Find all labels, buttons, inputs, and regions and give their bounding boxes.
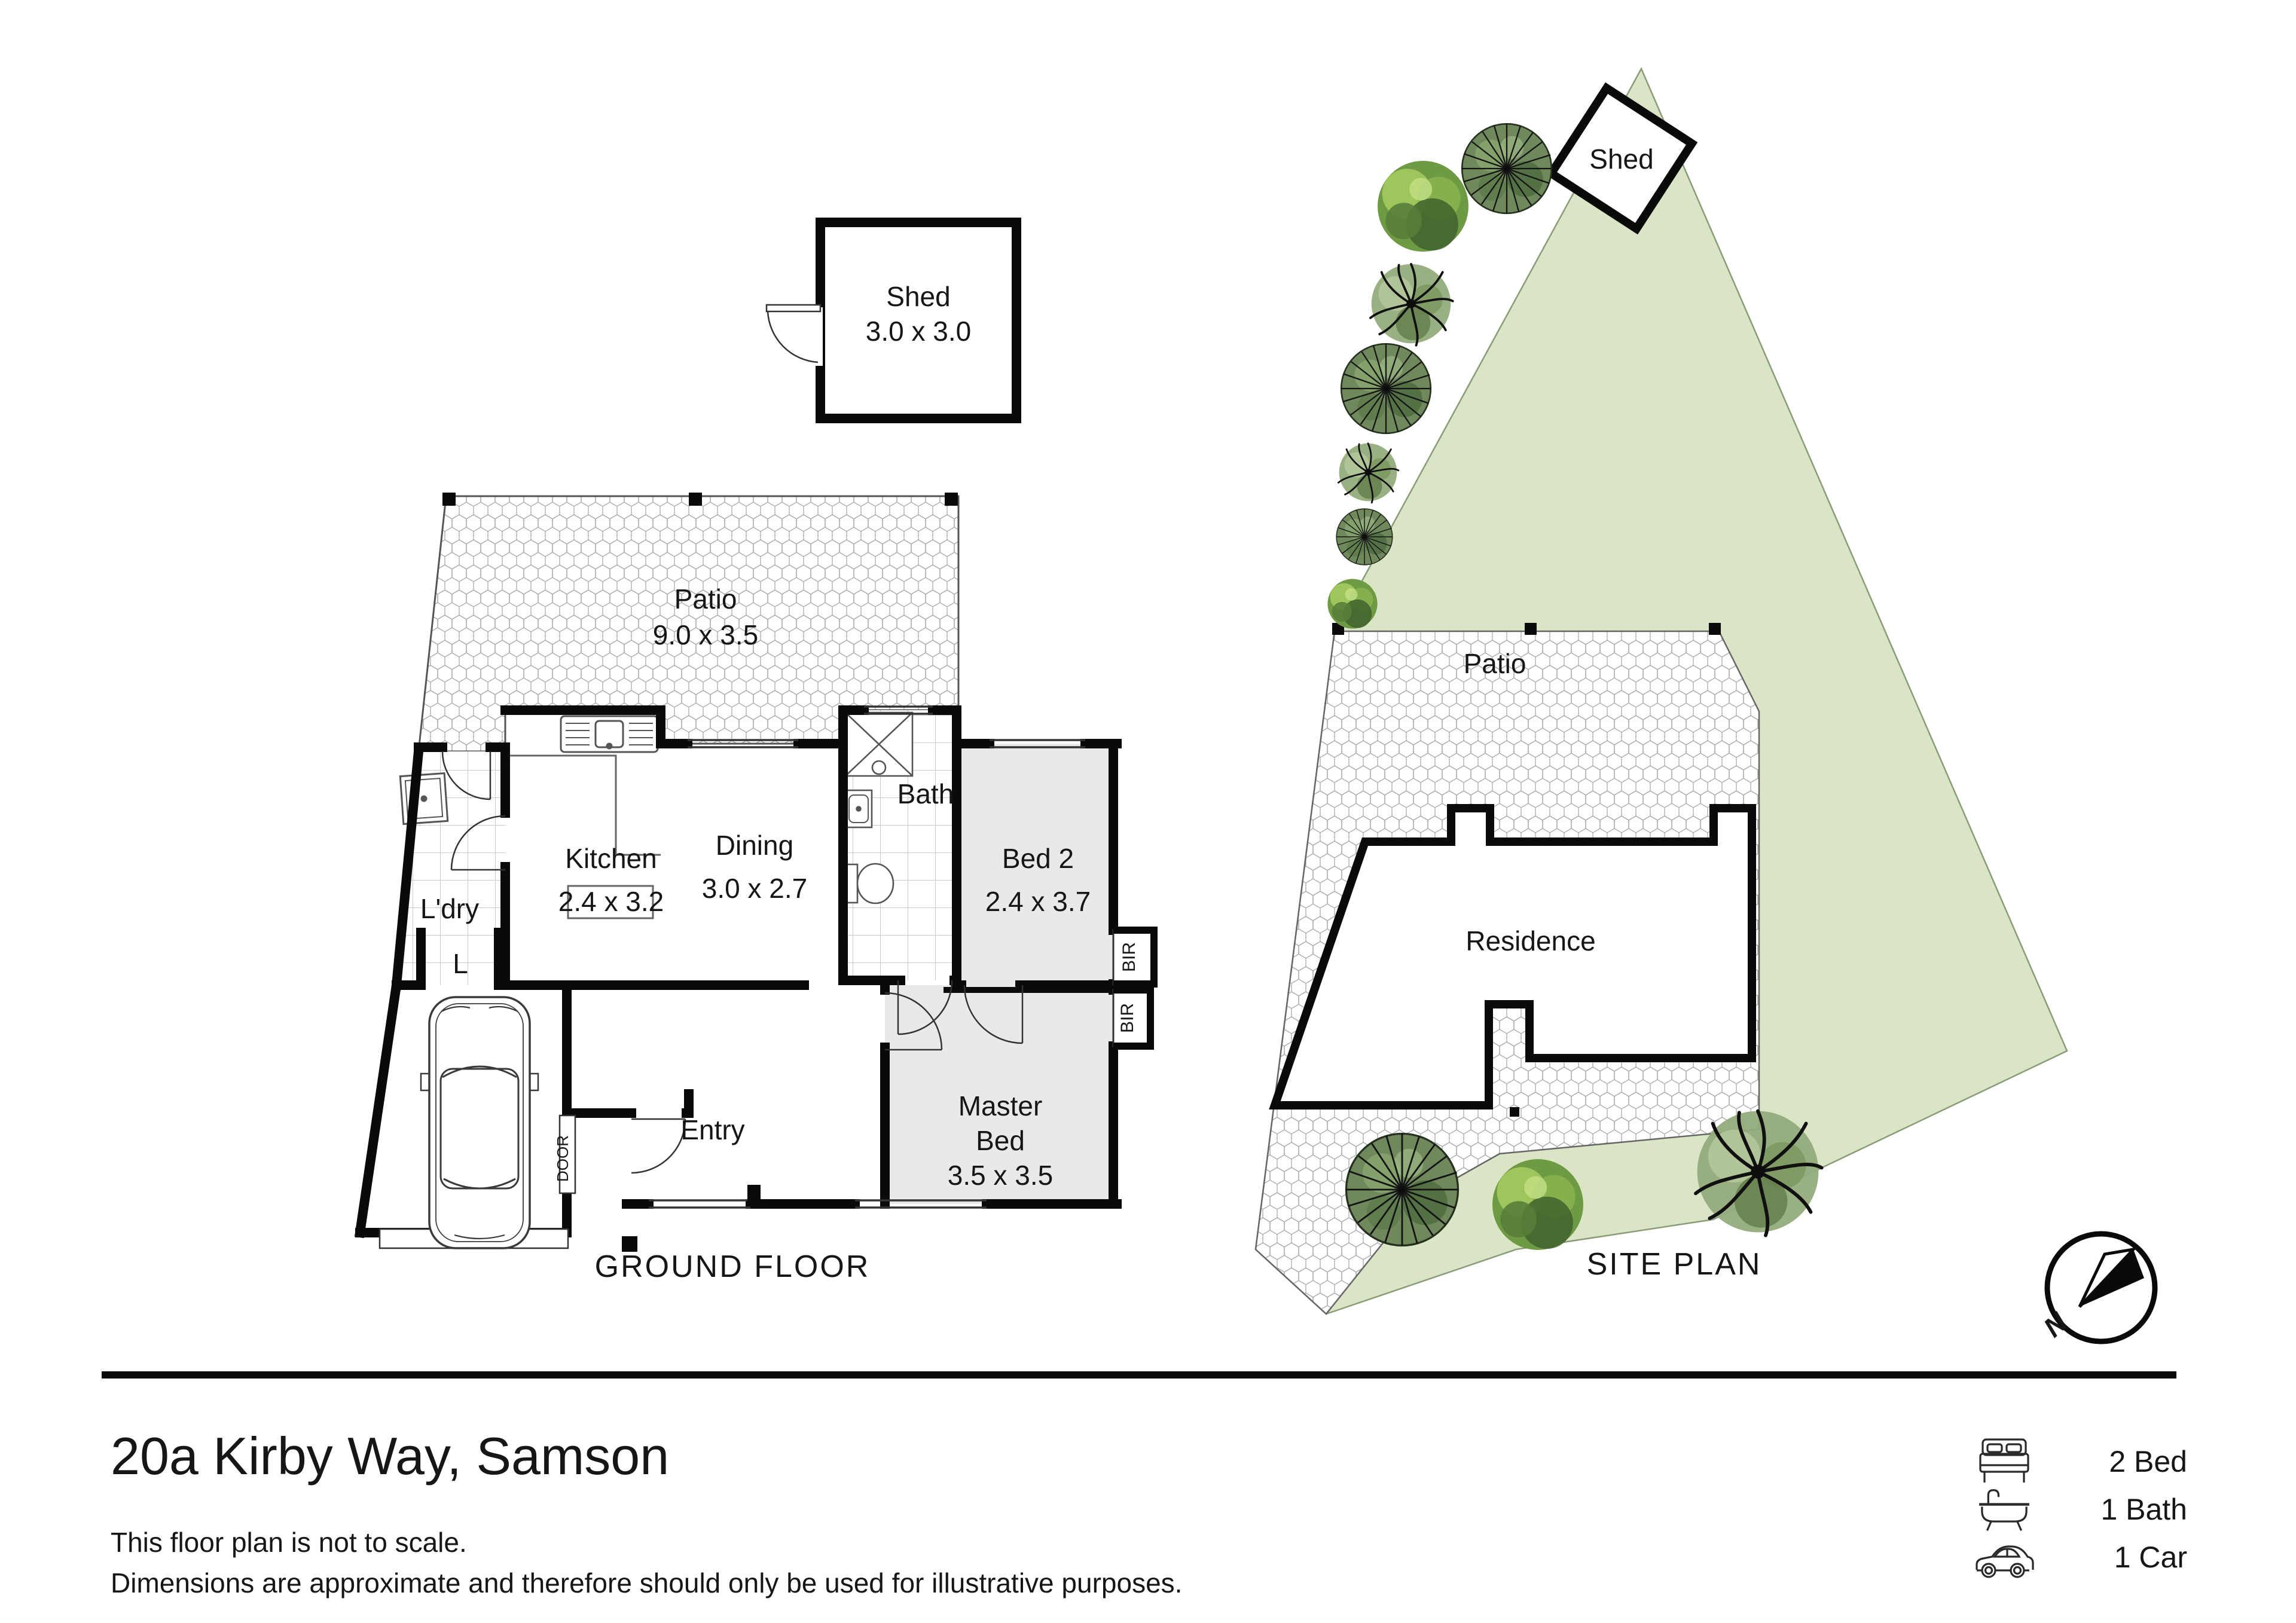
shower [845, 713, 912, 776]
palm-tree [1462, 124, 1552, 213]
shed-door-opening [811, 307, 823, 366]
site-patio-post [1709, 623, 1721, 635]
disclaimer-line-1: This floor plan is not to scale. [111, 1527, 467, 1558]
disclaimer-line-2: Dimensions are approximate and therefore… [111, 1567, 1182, 1598]
bush-tree [1492, 1159, 1583, 1250]
patio-dims: 9.0 x 3.5 [653, 619, 758, 650]
shed-door-leaf [767, 305, 820, 311]
floorplan-canvas: Shed 3.0 x 3.0 [0, 0, 2296, 1623]
shed-label: Shed [886, 281, 950, 312]
palm-tree [1336, 509, 1393, 565]
bath-icon [1979, 1490, 2029, 1531]
site-plan-title: SITE PLAN [1587, 1247, 1762, 1282]
bush-tree [1327, 579, 1377, 628]
car-icon [1977, 1546, 2033, 1577]
branch-tree [1338, 444, 1398, 503]
patio-post [442, 493, 456, 506]
shed-door-arc [768, 311, 818, 362]
site-post [1510, 1107, 1519, 1117]
palm-tree [1347, 1134, 1458, 1246]
garage-internal-door: DOOR [554, 1115, 575, 1193]
shed-dims: 3.0 x 3.0 [866, 316, 971, 347]
linen-label: L [453, 948, 468, 979]
laundry-trough [400, 774, 447, 824]
entry-label: Entry [680, 1114, 744, 1145]
divider-line [102, 1371, 2176, 1379]
patio-post [689, 493, 702, 506]
garage-car [421, 997, 538, 1248]
site-patio-label: Patio [1464, 648, 1526, 679]
address: 20a Kirby Way, Samson [111, 1426, 669, 1486]
bush-tree [1378, 161, 1468, 252]
kitchen-dims: 2.4 x 3.2 [558, 886, 664, 917]
bir-label: BIR [1118, 1003, 1137, 1033]
bath-label: Bath [897, 778, 954, 809]
dining-dims: 3.0 x 2.7 [702, 873, 807, 904]
bir-label: BIR [1119, 942, 1139, 972]
dining-label: Dining [716, 830, 793, 861]
site-plan: Shed Patio Residence SITE PLAN N [1256, 69, 2155, 1343]
laundry-label: L'dry [420, 893, 479, 924]
feature-beds: 2 Bed [2109, 1445, 2187, 1478]
site-patio-post [1525, 623, 1537, 635]
ground-floor-title: GROUND FLOOR [595, 1249, 871, 1284]
patio-label: Patio [674, 583, 737, 615]
bed-icon [1980, 1439, 2028, 1483]
wall-stub [747, 1185, 761, 1204]
ground-floor-plan: Shed 3.0 x 3.0 [360, 222, 1154, 1284]
feature-baths: 1 Bath [2100, 1493, 2187, 1526]
compass: N [2038, 1234, 2155, 1343]
bed2-dims: 2.4 x 3.7 [985, 886, 1091, 917]
master-label-1: Master [958, 1090, 1043, 1121]
bir-bed2: BIR [1113, 930, 1154, 984]
door-label: DOOR [554, 1135, 572, 1182]
branch-tree [1696, 1111, 1822, 1236]
bed2-label: Bed 2 [1002, 843, 1074, 874]
toilet [845, 864, 893, 903]
bath-vanity [845, 790, 872, 827]
site-shed-label: Shed [1589, 143, 1653, 175]
bir-master: BIR [1113, 990, 1150, 1046]
kitchen-label: Kitchen [565, 843, 657, 874]
patio-post [945, 493, 958, 506]
site-residence-label: Residence [1465, 925, 1595, 956]
palm-tree [1341, 344, 1431, 433]
shed-floorplan: Shed 3.0 x 3.0 [767, 222, 1016, 418]
kitchen-sink [561, 716, 658, 752]
branch-tree [1370, 264, 1453, 346]
footer: 20a Kirby Way, Samson This floor plan is… [102, 1371, 2187, 1598]
master-label-2: Bed [976, 1125, 1025, 1156]
master-dims: 3.5 x 3.5 [948, 1160, 1053, 1191]
feature-cars: 1 Car [2114, 1541, 2187, 1574]
